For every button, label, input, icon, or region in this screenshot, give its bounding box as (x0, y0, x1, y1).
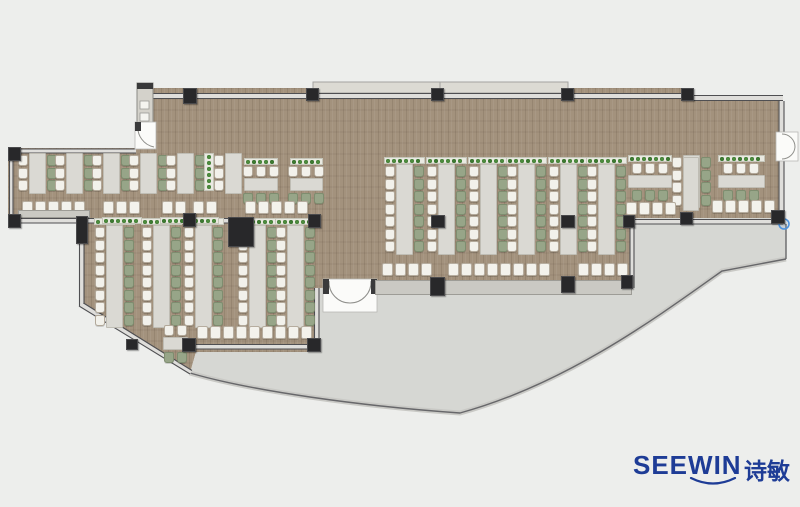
chair-white (276, 315, 286, 326)
chair-white (587, 229, 597, 240)
chair-white (469, 216, 479, 227)
plant-icon (618, 159, 622, 163)
chair-white (549, 191, 559, 202)
dining-table (718, 175, 765, 188)
chair-green (536, 241, 546, 252)
stool (461, 263, 472, 276)
plant-icon (642, 157, 646, 161)
stool (129, 201, 140, 214)
chair-white (469, 166, 479, 177)
chair-green (456, 179, 466, 190)
chair-white (276, 265, 286, 276)
chair-green (536, 216, 546, 227)
plant-icon (636, 157, 640, 161)
structural-column (680, 212, 693, 225)
chair-green (645, 190, 655, 201)
chair-white (549, 179, 559, 190)
stool (275, 326, 286, 339)
chair-white (507, 241, 517, 252)
plant-icon (452, 159, 456, 163)
stool (712, 200, 723, 213)
structural-column (76, 216, 88, 244)
structural-column (308, 214, 321, 228)
stool (738, 200, 749, 213)
plant-icon (207, 161, 211, 165)
chair-white (214, 155, 224, 166)
chair-white (507, 216, 517, 227)
chair-white (385, 166, 395, 177)
plant-icon (648, 157, 652, 161)
chair-white (507, 204, 517, 215)
structural-column (182, 338, 196, 352)
chair-white (184, 302, 194, 313)
plant-icon (588, 159, 592, 163)
chair-green (213, 302, 223, 313)
plant-icon (207, 167, 211, 171)
chair-white (92, 180, 102, 191)
structural-column (431, 88, 444, 101)
chair-white (95, 315, 105, 326)
chair-green (124, 315, 134, 326)
plant-icon (446, 159, 450, 163)
plant-icon (263, 220, 267, 224)
plant-icon (104, 219, 108, 223)
plant-icon (520, 159, 524, 163)
chair-white (95, 240, 105, 251)
chair-white (238, 302, 248, 313)
plant-icon (295, 220, 299, 224)
chair-green (213, 265, 223, 276)
chair-white (427, 229, 437, 240)
chair-white (587, 179, 597, 190)
stool (578, 263, 589, 276)
chair-green (305, 252, 315, 263)
chair-white (469, 191, 479, 202)
plant-icon (122, 219, 126, 223)
dining-table (153, 225, 170, 328)
chair-green (171, 240, 181, 251)
stool (751, 200, 762, 213)
chair-white (142, 290, 152, 301)
chair-green (124, 227, 134, 238)
chair-green (171, 277, 181, 288)
stool (539, 263, 550, 276)
stool (487, 263, 498, 276)
plant-icon (207, 185, 211, 189)
chair-green (414, 216, 424, 227)
chair-white (164, 325, 174, 336)
plant-icon (298, 160, 302, 164)
plant-icon (494, 159, 498, 163)
chair-green (701, 182, 711, 193)
chair-green (616, 204, 626, 215)
dining-table (683, 157, 699, 211)
chair-green (616, 166, 626, 177)
chair-white (276, 290, 286, 301)
chair-white (507, 166, 517, 177)
plant-icon (600, 159, 604, 163)
stool (262, 326, 273, 339)
stool (271, 201, 282, 214)
plant-icon (404, 159, 408, 163)
chair-white (18, 180, 28, 191)
chair-white (184, 240, 194, 251)
stool (197, 326, 208, 339)
chair-white (18, 168, 28, 179)
chair-white (184, 265, 194, 276)
chair-green (616, 191, 626, 202)
chair-green (171, 315, 181, 326)
chair-green (124, 277, 134, 288)
chair-green (701, 170, 711, 181)
stool (249, 326, 260, 339)
chair-green (536, 179, 546, 190)
chair-green (171, 252, 181, 263)
plant-icon (168, 219, 172, 223)
chair-white (549, 241, 559, 252)
chair-green (536, 166, 546, 177)
stool (652, 202, 663, 215)
structural-column (561, 88, 574, 101)
chair-white (95, 277, 105, 288)
stool (395, 263, 406, 276)
chair-white (238, 252, 248, 263)
chair-white (142, 302, 152, 313)
structural-column (561, 276, 575, 293)
chair-white (256, 166, 266, 177)
chair-white (276, 227, 286, 238)
dining-table (518, 164, 535, 255)
plant-icon (416, 159, 420, 163)
plant-icon (732, 157, 736, 161)
chair-white (587, 166, 597, 177)
chair-green (171, 265, 181, 276)
plant-icon (440, 159, 444, 163)
chair-white (55, 180, 65, 191)
chair-white (385, 204, 395, 215)
chair-green (171, 302, 181, 313)
chair-white (314, 166, 324, 177)
stool (725, 200, 736, 213)
plant-icon (149, 220, 153, 224)
stool (245, 201, 256, 214)
stool (223, 326, 234, 339)
brand-swoosh (689, 477, 737, 487)
structural-column (623, 215, 635, 228)
dining-table (103, 153, 120, 194)
chair-green (658, 190, 668, 201)
dining-table (106, 225, 123, 328)
stool (206, 201, 217, 214)
chair-white (55, 155, 65, 166)
plant-icon (594, 159, 598, 163)
plant-icon (392, 159, 396, 163)
chair-white (469, 179, 479, 190)
chair-white (276, 302, 286, 313)
chair-green (213, 252, 223, 263)
chair-white (238, 315, 248, 326)
chair-white (276, 252, 286, 263)
stool (382, 263, 393, 276)
structural-column (8, 214, 21, 228)
stool (639, 202, 650, 215)
stool (500, 263, 511, 276)
chair-white (672, 182, 682, 193)
dining-table (225, 153, 242, 194)
structural-column (307, 338, 321, 352)
chair-white (276, 240, 286, 251)
chair-white (92, 168, 102, 179)
structural-column (183, 213, 196, 227)
dining-table (480, 164, 497, 255)
chair-white (749, 163, 759, 174)
dining-table (598, 164, 615, 255)
chair-white (723, 163, 733, 174)
chair-white (55, 168, 65, 179)
chair-white (507, 191, 517, 202)
plant-icon (155, 220, 159, 224)
chair-green (124, 290, 134, 301)
structural-column (228, 217, 254, 247)
chair-green (171, 290, 181, 301)
plant-icon (660, 157, 664, 161)
plant-icon (128, 219, 132, 223)
chair-white (276, 277, 286, 288)
stool (284, 201, 295, 214)
chair-white (184, 252, 194, 263)
chair-white (184, 277, 194, 288)
plant-icon (568, 159, 572, 163)
plant-icon (434, 159, 438, 163)
stool (116, 201, 127, 214)
plant-icon (458, 159, 462, 163)
plant-icon (292, 160, 296, 164)
plant-icon (304, 160, 308, 164)
chair-white (427, 204, 437, 215)
chair-white (269, 166, 279, 177)
dining-table (195, 225, 212, 328)
chair-white (549, 166, 559, 177)
plant-icon (110, 219, 114, 223)
chair-green (305, 277, 315, 288)
plant-icon (398, 159, 402, 163)
plant-icon (212, 219, 216, 223)
chair-white (92, 155, 102, 166)
chair-green (414, 179, 424, 190)
chair-white (632, 163, 642, 174)
chair-green (616, 229, 626, 240)
chair-white (129, 155, 139, 166)
plant-icon (283, 220, 287, 224)
plant-icon (200, 219, 204, 223)
plant-icon (207, 155, 211, 159)
chair-white (549, 229, 559, 240)
stool (526, 263, 537, 276)
plant-icon (270, 160, 274, 164)
structural-column (431, 215, 445, 228)
structural-column (561, 215, 575, 228)
chair-green (616, 241, 626, 252)
chair-green (213, 240, 223, 251)
floorplan-canvas: SEEWIN 诗敏 (0, 0, 800, 507)
stool (626, 202, 637, 215)
plant-icon (726, 157, 730, 161)
chair-white (142, 277, 152, 288)
chair-white (129, 180, 139, 191)
chair-white (385, 191, 395, 202)
stool (210, 326, 221, 339)
chair-white (645, 163, 655, 174)
chair-white (214, 180, 224, 191)
stool (258, 201, 269, 214)
plant-icon (143, 220, 147, 224)
structural-column (126, 339, 138, 350)
plant-icon (514, 159, 518, 163)
plant-icon (538, 159, 542, 163)
plant-icon (476, 159, 480, 163)
chair-white (129, 168, 139, 179)
chair-white (549, 216, 559, 227)
dining-table (560, 164, 577, 255)
plant-icon (246, 160, 250, 164)
chair-white (301, 166, 311, 177)
chair-white (587, 216, 597, 227)
plant-icon (258, 160, 262, 164)
plant-icon (550, 159, 554, 163)
plant-icon (666, 157, 670, 161)
plant-icon (580, 159, 584, 163)
chair-white (385, 216, 395, 227)
stool (288, 326, 299, 339)
chair-green (414, 229, 424, 240)
chair-white (469, 204, 479, 215)
plant-icon (482, 159, 486, 163)
chair-white (95, 227, 105, 238)
plant-icon (428, 159, 432, 163)
plant-icon (556, 159, 560, 163)
plant-icon (252, 160, 256, 164)
chair-white (469, 241, 479, 252)
dining-table (396, 164, 413, 255)
chair-green (456, 216, 466, 227)
chair-green (456, 166, 466, 177)
chair-green (124, 252, 134, 263)
chair-green (414, 191, 424, 202)
stool (604, 263, 615, 276)
stool (297, 201, 308, 214)
counter (375, 280, 632, 295)
plant-icon (316, 160, 320, 164)
structural-column (306, 88, 319, 101)
chair-white (385, 229, 395, 240)
structural-column (771, 210, 785, 224)
chair-white (385, 241, 395, 252)
chair-green (701, 195, 711, 206)
chair-white (166, 180, 176, 191)
plant-icon (532, 159, 536, 163)
chair-white (507, 179, 517, 190)
chair-green (213, 290, 223, 301)
chair-green (632, 190, 642, 201)
chair-white (736, 163, 746, 174)
chair-green (701, 157, 711, 168)
plant-icon (257, 220, 261, 224)
chair-white (142, 227, 152, 238)
plant-icon (750, 157, 754, 161)
chair-white (507, 229, 517, 240)
brand-logo: SEEWIN 诗敏 (627, 448, 799, 488)
chair-white (587, 241, 597, 252)
plant-icon (488, 159, 492, 163)
stool (103, 201, 114, 214)
stool (408, 263, 419, 276)
chair-white (142, 252, 152, 263)
chair-green (616, 179, 626, 190)
plant-icon (134, 219, 138, 223)
chair-green (414, 241, 424, 252)
stool (513, 263, 524, 276)
chair-green (414, 166, 424, 177)
plant-icon (207, 179, 211, 183)
chair-green (305, 302, 315, 313)
plant-icon (654, 157, 658, 161)
chair-white (427, 166, 437, 177)
stool (421, 263, 432, 276)
dining-table (177, 153, 194, 194)
stool (591, 263, 602, 276)
stool (448, 263, 459, 276)
plant-icon (508, 159, 512, 163)
chair-green (124, 265, 134, 276)
chair-green (305, 290, 315, 301)
structural-column (621, 275, 633, 289)
structural-column (681, 88, 694, 101)
chair-green (456, 204, 466, 215)
chair-white (184, 227, 194, 238)
chair-white (469, 229, 479, 240)
chair-white (427, 241, 437, 252)
chair-green (536, 229, 546, 240)
chair-green (305, 315, 315, 326)
chair-green (536, 204, 546, 215)
plant-icon (720, 157, 724, 161)
chair-white (427, 179, 437, 190)
plant-icon (207, 173, 211, 177)
chair-white (184, 315, 194, 326)
dining-table (140, 153, 157, 194)
plant-icon (562, 159, 566, 163)
chair-white (95, 290, 105, 301)
plant-icon (277, 220, 281, 224)
chair-green (305, 227, 315, 238)
plant-icon (96, 220, 100, 224)
plant-icon (630, 157, 634, 161)
furniture-layer (0, 0, 800, 507)
chair-white (238, 277, 248, 288)
chair-green (456, 229, 466, 240)
chair-white (166, 155, 176, 166)
plant-icon (116, 219, 120, 223)
chair-green (177, 352, 187, 363)
plant-icon (574, 159, 578, 163)
chair-green (164, 352, 174, 363)
chair-white (385, 179, 395, 190)
stool (665, 202, 676, 215)
dining-table (628, 175, 672, 188)
plant-icon (310, 160, 314, 164)
plant-icon (470, 159, 474, 163)
plant-icon (500, 159, 504, 163)
